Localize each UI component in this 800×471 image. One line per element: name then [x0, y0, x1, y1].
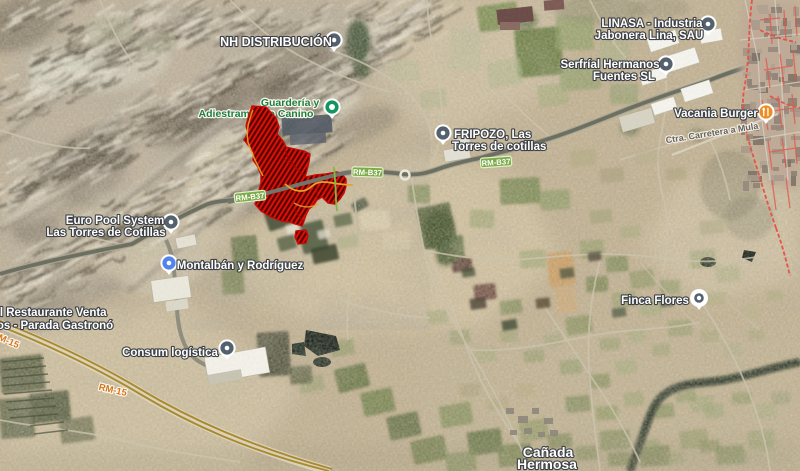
svg-text:Torres de cotillas: Torres de cotillas: [452, 141, 546, 153]
svg-text:Vacania Burger: Vacania Burger: [674, 108, 758, 120]
svg-text:Serfríal Hermanos: Serfríal Hermanos: [560, 59, 659, 71]
svg-text:Consum logística: Consum logística: [122, 347, 218, 359]
svg-text:el Restaurante Venta: el Restaurante Venta: [0, 307, 107, 319]
svg-text:Montalbán y Rodríguez: Montalbán y Rodríguez: [177, 260, 304, 272]
svg-text:Euro Pool System: Euro Pool System: [66, 215, 164, 227]
svg-text:Jabonera Lina, SAU: Jabonera Lina, SAU: [595, 30, 704, 42]
svg-text:RM-B37: RM-B37: [353, 167, 382, 177]
svg-text:FRIPOZO, Las: FRIPOZO, Las: [454, 129, 531, 141]
svg-text:NH DISTRIBUCIÓN: NH DISTRIBUCIÓN: [220, 34, 332, 49]
svg-text:Hermosa: Hermosa: [517, 456, 577, 471]
svg-text:os - Parada Gastronó: os - Parada Gastronó: [0, 320, 113, 332]
svg-text:Las Torres de Cotillas: Las Torres de Cotillas: [46, 227, 165, 239]
svg-text:Fuentes SL: Fuentes SL: [593, 71, 655, 83]
svg-text:LINASA - Industria: LINASA - Industria: [601, 18, 703, 30]
svg-text:Finca Flores: Finca Flores: [621, 295, 689, 307]
